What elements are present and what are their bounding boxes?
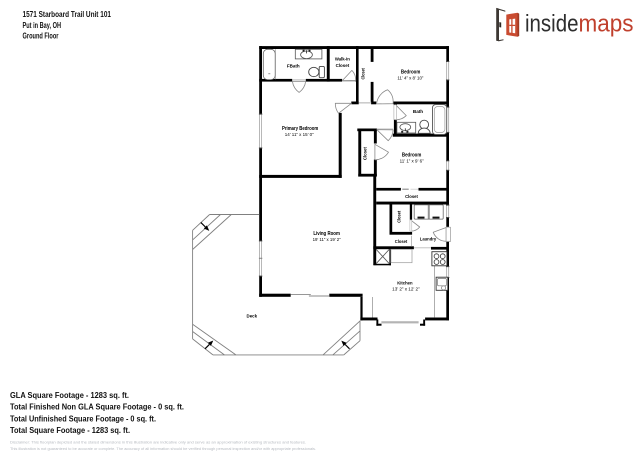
- svg-text:11’ 4” x 8’ 10”: 11’ 4” x 8’ 10”: [397, 76, 424, 81]
- svg-text:19’ 11” x 19’ 2”: 19’ 11” x 19’ 2”: [313, 237, 342, 242]
- svg-text:Closet: Closet: [363, 147, 368, 161]
- svg-text:This illustration is not guara: This illustration is not guaranteed to b…: [10, 446, 316, 451]
- svg-text:Closet: Closet: [395, 239, 408, 244]
- svg-text:GLA Square Footage - 1283 sq.: GLA Square Footage - 1283 sq. ft.: [10, 391, 129, 400]
- svg-text:Ground Floor: Ground Floor: [23, 32, 59, 41]
- svg-text:Bath: Bath: [413, 109, 423, 114]
- svg-text:Living Room: Living Room: [313, 231, 340, 237]
- svg-text:Total Unfinished Square Footag: Total Unfinished Square Footage - 0 sq. …: [10, 414, 156, 423]
- svg-text:insidemaps: insidemaps: [525, 10, 634, 37]
- svg-text:Kitchen: Kitchen: [397, 281, 413, 286]
- svg-text:Walk-In: Walk-In: [335, 56, 350, 61]
- svg-text:FBath: FBath: [287, 64, 300, 69]
- svg-text:11’ 1” x 9’ 6”: 11’ 1” x 9’ 6”: [400, 159, 425, 164]
- svg-text:Closet: Closet: [405, 194, 418, 199]
- svg-text:Laundry: Laundry: [420, 236, 437, 241]
- svg-text:Primary Bedroom: Primary Bedroom: [282, 126, 319, 132]
- svg-text:Disclaimer: This floorplan dep: Disclaimer: This floorplan depicted and …: [10, 440, 306, 445]
- svg-text:14’ 11” x 15’ 0”: 14’ 11” x 15’ 0”: [285, 132, 314, 137]
- svg-text:Closet: Closet: [336, 63, 350, 68]
- svg-text:Closet: Closet: [397, 210, 402, 223]
- svg-text:1571 Starboard Trail Unit 101: 1571 Starboard Trail Unit 101: [23, 10, 112, 19]
- svg-text:Closet: Closet: [361, 68, 366, 80]
- svg-text:Total Square Footage - 1283 sq: Total Square Footage - 1283 sq. ft.: [10, 426, 130, 435]
- svg-text:Put in Bay, OH: Put in Bay, OH: [23, 21, 62, 30]
- svg-text:13’ 2” x 12’ 2”: 13’ 2” x 12’ 2”: [392, 287, 420, 292]
- svg-text:Deck: Deck: [247, 314, 258, 319]
- svg-text:Total Finished Non GLA Square: Total Finished Non GLA Square Footage - …: [10, 403, 184, 412]
